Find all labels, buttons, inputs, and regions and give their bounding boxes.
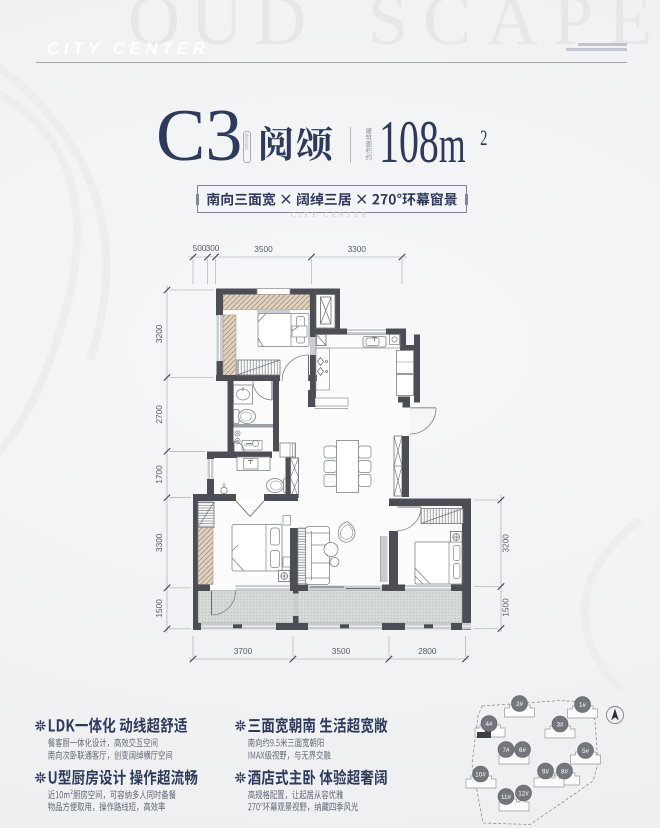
svg-text:5#: 5# bbox=[582, 748, 590, 755]
svg-text:8#: 8# bbox=[561, 768, 569, 775]
svg-text:10#: 10# bbox=[475, 771, 486, 778]
svg-text:3300: 3300 bbox=[154, 533, 164, 552]
svg-text:3#: 3# bbox=[556, 721, 564, 728]
svg-text:1500: 1500 bbox=[501, 598, 511, 617]
svg-text:2700: 2700 bbox=[154, 405, 164, 424]
svg-text:2#: 2# bbox=[516, 701, 524, 708]
svg-text:1500: 1500 bbox=[154, 599, 164, 618]
svg-text:12#: 12# bbox=[518, 790, 529, 797]
svg-text:4#: 4# bbox=[485, 721, 493, 728]
svg-text:6#: 6# bbox=[519, 747, 527, 754]
svg-text:300: 300 bbox=[206, 243, 220, 253]
svg-text:1700: 1700 bbox=[154, 465, 164, 484]
svg-text:3200: 3200 bbox=[501, 534, 511, 553]
svg-text:3700: 3700 bbox=[234, 646, 253, 656]
svg-text:3300: 3300 bbox=[348, 244, 367, 254]
svg-text:1#: 1# bbox=[579, 702, 587, 709]
svg-text:3500: 3500 bbox=[254, 244, 273, 254]
svg-text:3200: 3200 bbox=[154, 324, 164, 343]
svg-text:9#: 9# bbox=[542, 768, 550, 775]
svg-text:11#: 11# bbox=[501, 794, 512, 801]
svg-text:3500: 3500 bbox=[332, 646, 351, 656]
svg-text:7#: 7# bbox=[502, 747, 510, 754]
svg-text:2800: 2800 bbox=[418, 646, 437, 656]
